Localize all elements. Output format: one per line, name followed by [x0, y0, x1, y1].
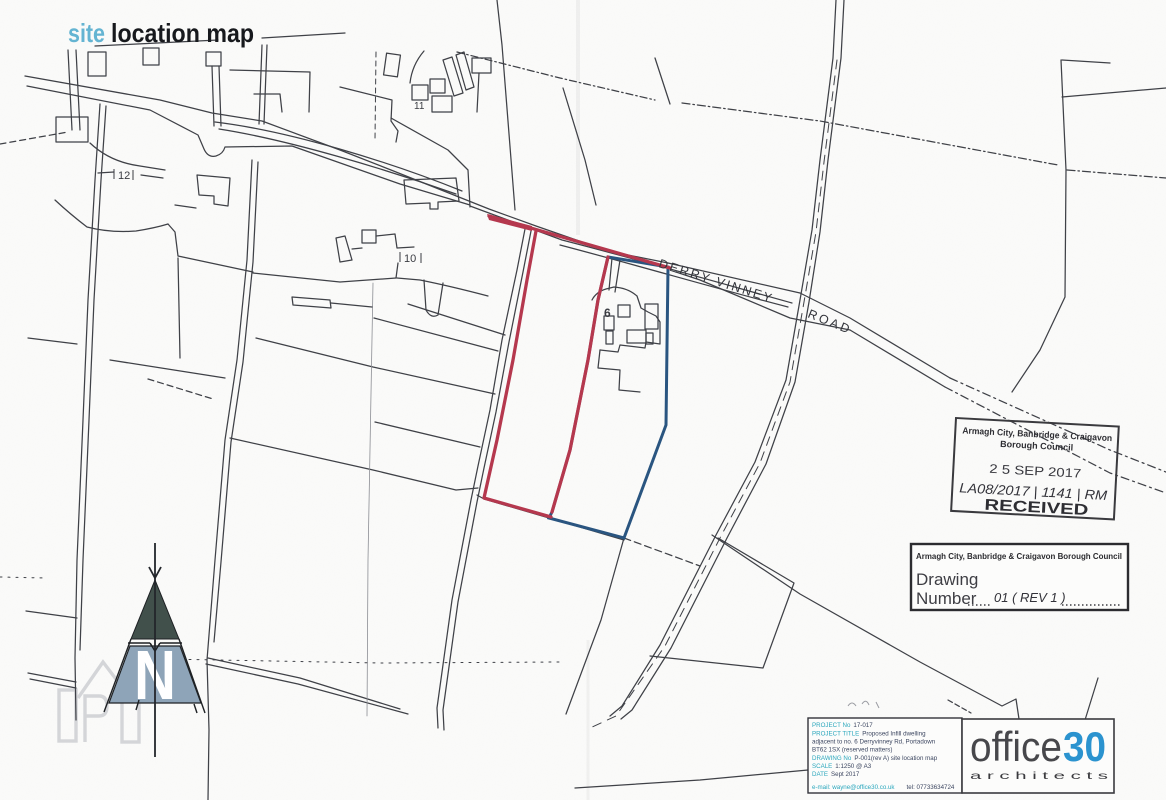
- svg-text:11: 11: [414, 101, 425, 112]
- svg-text:a r c h i t e c t s: a r c h i t e c t s: [970, 770, 1108, 782]
- svg-text:SCALE1:1250 @ A3: SCALE1:1250 @ A3: [812, 763, 872, 770]
- svg-text:Drawing: Drawing: [916, 570, 978, 589]
- svg-text:6: 6: [604, 306, 611, 320]
- svg-text:location map: location map: [111, 18, 254, 48]
- svg-text:site: site: [68, 18, 105, 48]
- svg-text:01 ( REV 1 ): 01 ( REV 1 ): [994, 590, 1066, 605]
- svg-text:Number: Number: [916, 589, 977, 608]
- svg-text:BT62 1SX (reserved matters): BT62 1SX (reserved matters): [812, 747, 892, 754]
- svg-text:10: 10: [404, 253, 416, 265]
- svg-text:office: office: [970, 723, 1062, 770]
- svg-text:DATESept 2017: DATESept 2017: [812, 771, 860, 778]
- svg-text:e-mail: wayne@office30.co.ukte: e-mail: wayne@office30.co.uktel: 0773363…: [812, 784, 955, 791]
- svg-text:adjacent to no. 6 Derryvinney: adjacent to no. 6 Derryvinney Rd, Portad…: [812, 739, 936, 746]
- svg-text:PROJECT TITLEProposed Infill d: PROJECT TITLEProposed Infill dwelling: [812, 731, 926, 738]
- svg-text:12: 12: [118, 170, 130, 182]
- svg-text:DRAWING NoP-001(rev A) site lo: DRAWING NoP-001(rev A) site location map: [812, 755, 938, 762]
- svg-text:30: 30: [1063, 723, 1106, 770]
- svg-text:PROJECT No17-017: PROJECT No17-017: [812, 722, 873, 729]
- svg-text:Armagh City, Banbridge & Craig: Armagh City, Banbridge & Craigavon Borou…: [916, 551, 1122, 561]
